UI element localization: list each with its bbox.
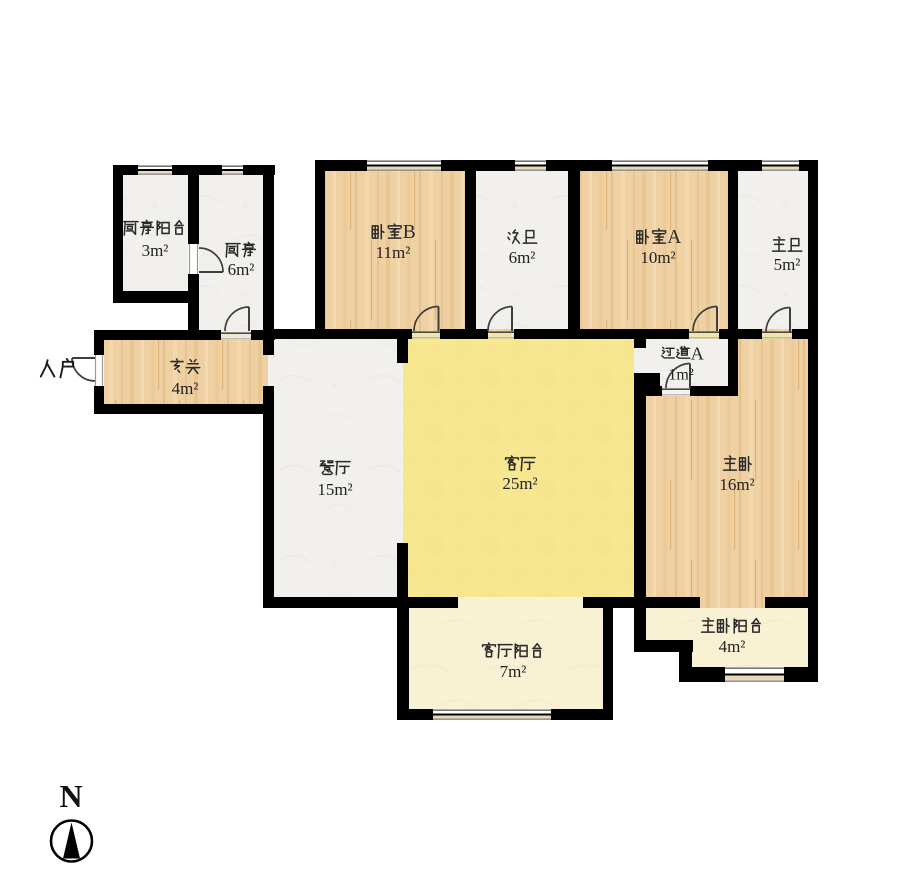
svg-text:B: B — [403, 222, 416, 243]
svg-text:25m²: 25m² — [502, 474, 537, 493]
svg-text:11m²: 11m² — [376, 243, 411, 262]
svg-text:16m²: 16m² — [719, 475, 754, 494]
svg-text:3m²: 3m² — [142, 241, 169, 260]
svg-text:10m²: 10m² — [640, 248, 675, 267]
svg-text:4m²: 4m² — [172, 379, 199, 398]
svg-text:6m²: 6m² — [509, 248, 536, 267]
svg-text:1m²: 1m² — [668, 366, 693, 383]
svg-text:A: A — [667, 227, 681, 248]
svg-text:15m²: 15m² — [317, 480, 352, 499]
svg-text:4m²: 4m² — [719, 637, 746, 656]
svg-text:7m²: 7m² — [500, 662, 527, 681]
svg-text:A: A — [691, 343, 705, 363]
svg-text:5m²: 5m² — [774, 255, 801, 274]
svg-text:6m²: 6m² — [228, 260, 255, 279]
svg-text:N: N — [59, 778, 82, 814]
